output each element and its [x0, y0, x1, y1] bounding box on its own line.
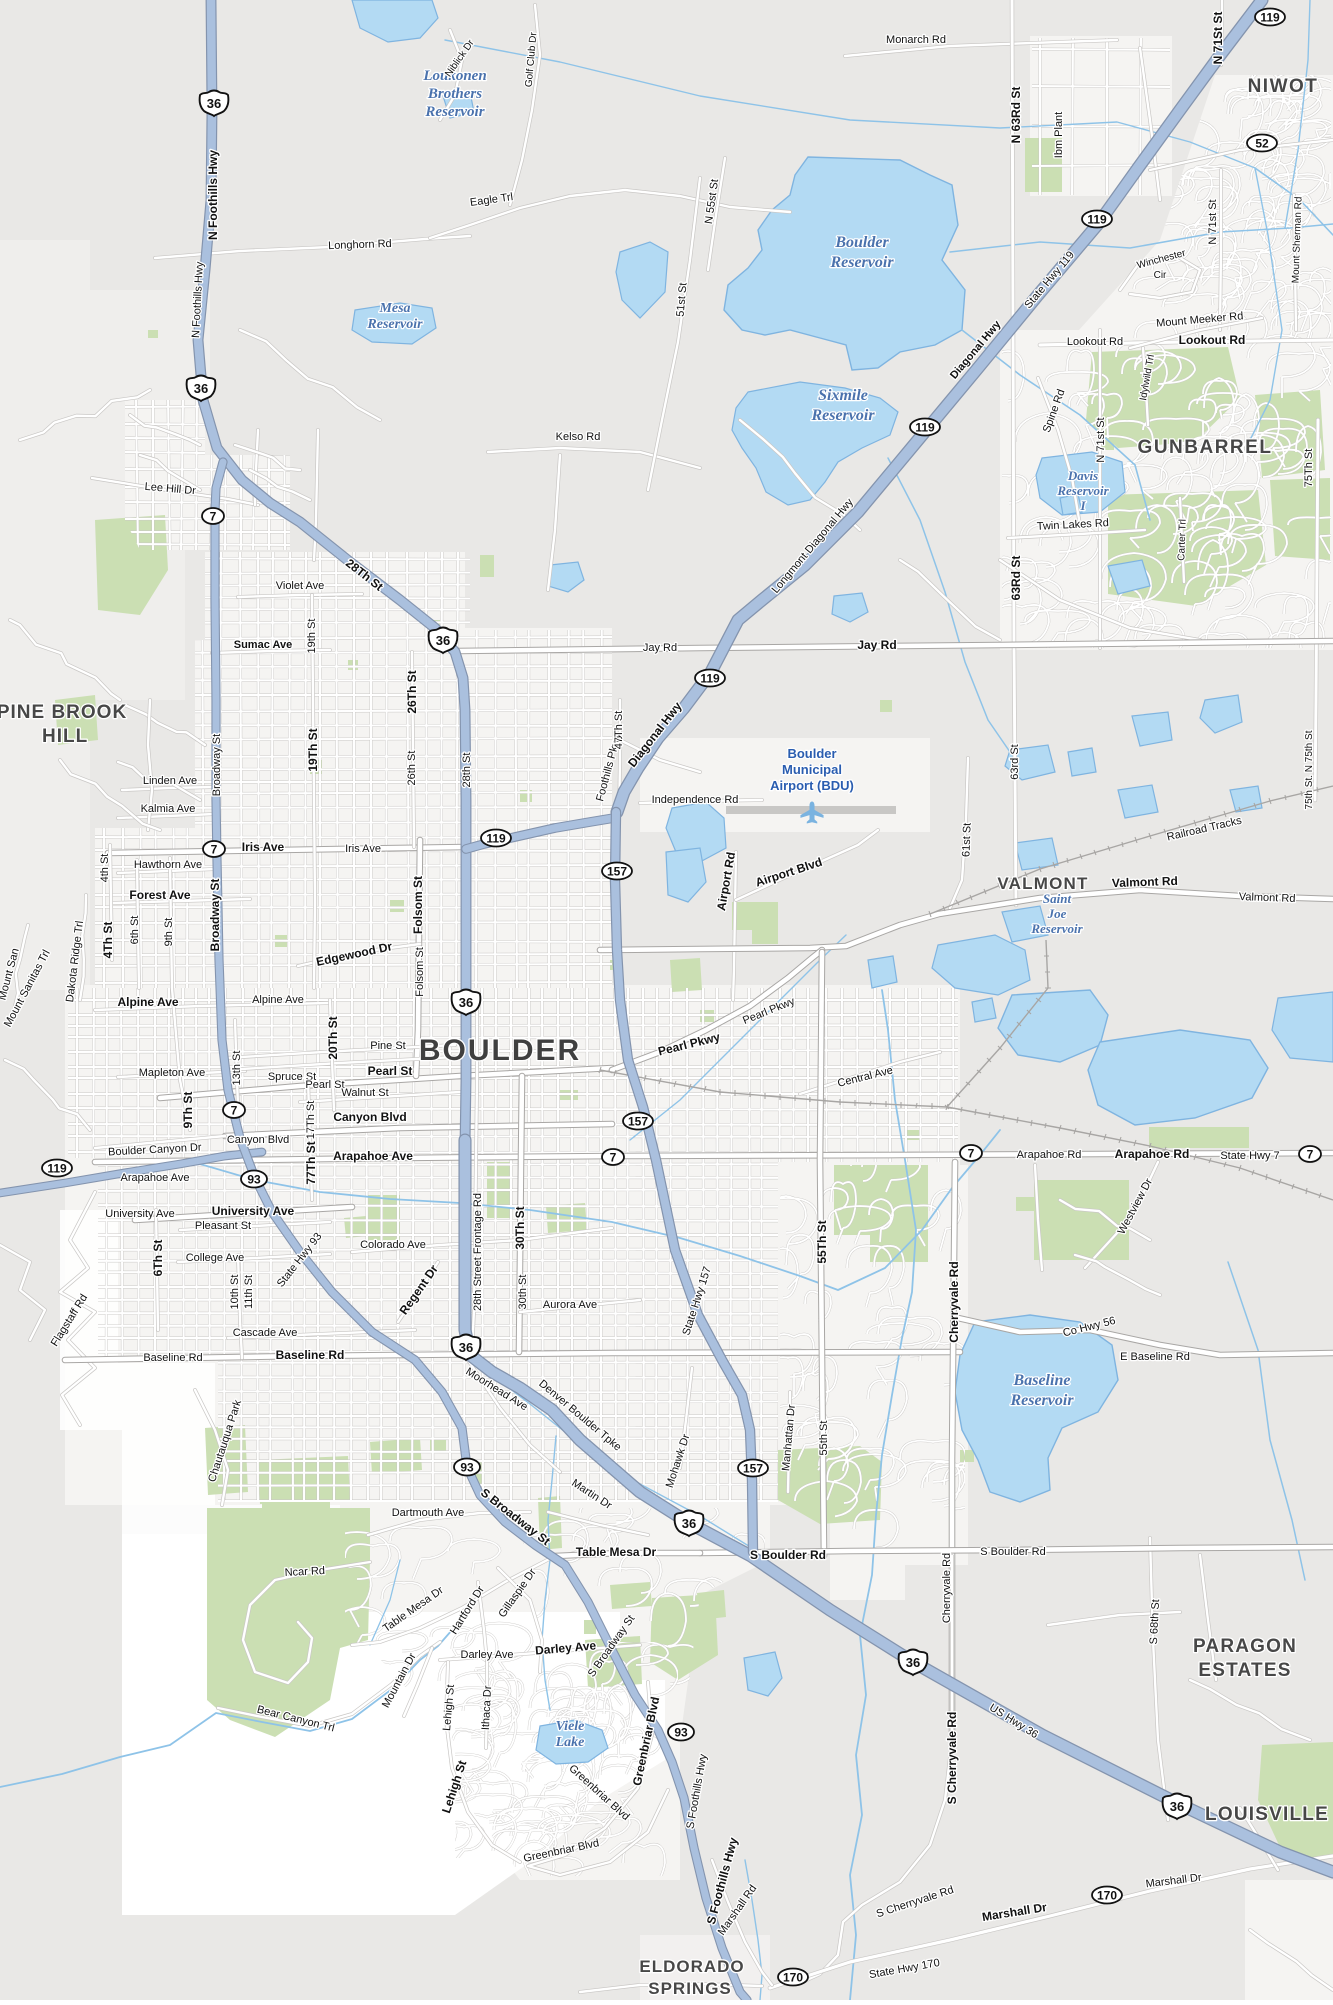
svg-text:61st St: 61st St — [960, 823, 973, 858]
svg-text:Reservoir: Reservoir — [810, 407, 875, 424]
svg-text:Broadway St: Broadway St — [208, 879, 222, 952]
svg-text:Arapahoe Ave: Arapahoe Ave — [121, 1172, 190, 1184]
svg-text:Mapleton Ave: Mapleton Ave — [139, 1067, 205, 1079]
svg-text:Folsom St: Folsom St — [414, 947, 426, 997]
svg-text:SPRINGS: SPRINGS — [648, 1979, 732, 1998]
svg-text:170: 170 — [1097, 1888, 1117, 1902]
svg-text:Longhorn Rd: Longhorn Rd — [328, 238, 392, 252]
svg-text:College Ave: College Ave — [186, 1252, 245, 1264]
svg-text:Pine St: Pine St — [370, 1040, 405, 1052]
svg-text:Colorado Ave: Colorado Ave — [360, 1239, 426, 1251]
svg-text:28th St: 28th St — [461, 753, 473, 788]
svg-text:20Th St: 20Th St — [326, 1016, 340, 1059]
svg-text:119: 119 — [1260, 10, 1280, 24]
svg-text:Arapahoe Rd: Arapahoe Rd — [1017, 1149, 1082, 1161]
svg-text:N 63Rd St: N 63Rd St — [1009, 87, 1023, 144]
svg-text:S Boulder Rd: S Boulder Rd — [750, 1548, 826, 1562]
svg-text:Viele: Viele — [556, 1719, 585, 1734]
svg-text:Airport (BDU): Airport (BDU) — [770, 778, 854, 793]
svg-text:55th St: 55th St — [818, 1421, 830, 1456]
svg-text:Brothers: Brothers — [427, 86, 482, 102]
svg-text:State Hwy 7: State Hwy 7 — [1220, 1150, 1279, 1162]
svg-text:7: 7 — [231, 1103, 238, 1117]
svg-text:4Th St: 4Th St — [101, 922, 115, 959]
svg-text:Iris Ave: Iris Ave — [345, 843, 381, 855]
svg-text:Linden Ave: Linden Ave — [143, 775, 197, 787]
svg-text:119: 119 — [1087, 212, 1107, 226]
svg-text:119: 119 — [700, 671, 720, 685]
svg-text:Alpine Ave: Alpine Ave — [252, 994, 304, 1006]
svg-text:VALMONT: VALMONT — [997, 874, 1088, 893]
svg-text:N 71st St: N 71st St — [1095, 417, 1107, 462]
svg-text:Sumac Ave: Sumac Ave — [234, 639, 293, 651]
svg-text:119: 119 — [915, 420, 935, 434]
svg-text:Darley Ave: Darley Ave — [461, 1649, 514, 1661]
svg-text:N 71St St: N 71St St — [1211, 12, 1225, 65]
svg-text:26th St: 26th St — [406, 751, 418, 786]
svg-text:47Th St: 47Th St — [613, 711, 625, 750]
svg-text:28th Street Frontage Rd: 28th Street Frontage Rd — [472, 1193, 484, 1311]
svg-text:Independence Rd: Independence Rd — [652, 794, 739, 806]
svg-text:Reservoir: Reservoir — [1056, 483, 1109, 498]
svg-text:13th St: 13th St — [231, 1051, 243, 1086]
svg-text:Valmont Rd: Valmont Rd — [1112, 874, 1178, 890]
svg-text:Kalmia Ave: Kalmia Ave — [141, 803, 196, 815]
svg-text:30th St: 30th St — [517, 1275, 529, 1310]
svg-text:Reservoir: Reservoir — [1030, 921, 1083, 936]
svg-text:Jay Rd: Jay Rd — [857, 638, 896, 652]
svg-text:Reservoir: Reservoir — [1009, 1392, 1074, 1409]
svg-text:93: 93 — [674, 1725, 688, 1739]
svg-text:Canyon Blvd: Canyon Blvd — [333, 1110, 406, 1124]
svg-text:157: 157 — [607, 864, 627, 878]
svg-text:11th St: 11th St — [243, 1275, 255, 1309]
svg-text:6Th St: 6Th St — [151, 1240, 165, 1277]
svg-text:Reservoir: Reservoir — [366, 317, 423, 332]
svg-text:Valmont Rd: Valmont Rd — [1239, 891, 1296, 905]
svg-text:Davis: Davis — [1067, 468, 1098, 483]
svg-text:Municipal: Municipal — [782, 762, 842, 777]
svg-text:E Baseline Rd: E Baseline Rd — [1120, 1351, 1190, 1363]
svg-text:Walnut St: Walnut St — [341, 1087, 388, 1099]
svg-text:9th St: 9th St — [163, 918, 175, 947]
svg-text:BOULDER: BOULDER — [419, 1034, 581, 1067]
svg-text:I: I — [1079, 498, 1086, 513]
svg-text:N Foothills Hwy: N Foothills Hwy — [206, 150, 220, 240]
svg-text:157: 157 — [628, 1114, 648, 1128]
svg-text:36: 36 — [207, 96, 221, 111]
svg-text:Dartmouth Ave: Dartmouth Ave — [392, 1507, 465, 1519]
svg-text:Kelso Rd: Kelso Rd — [556, 431, 601, 443]
svg-text:52: 52 — [1255, 136, 1269, 150]
svg-text:ELDORADO: ELDORADO — [639, 1957, 744, 1976]
svg-text:36: 36 — [194, 381, 208, 396]
svg-text:36: 36 — [436, 633, 450, 648]
svg-text:93: 93 — [247, 1172, 261, 1186]
svg-text:Baseline Rd: Baseline Rd — [276, 1348, 345, 1362]
svg-text:Aurora Ave: Aurora Ave — [543, 1299, 597, 1311]
svg-text:Sixmile: Sixmile — [818, 387, 868, 404]
svg-text:Baseline Rd: Baseline Rd — [143, 1352, 202, 1364]
svg-text:63Rd St: 63Rd St — [1009, 556, 1023, 601]
svg-text:Broadway St: Broadway St — [211, 734, 223, 796]
svg-text:Cherryvale Rd: Cherryvale Rd — [941, 1553, 953, 1623]
svg-text:36: 36 — [682, 1516, 696, 1531]
svg-text:Lookout Rd: Lookout Rd — [1067, 336, 1123, 348]
svg-text:NIWOT: NIWOT — [1248, 76, 1319, 97]
svg-text:6th St: 6th St — [129, 916, 141, 945]
svg-text:119: 119 — [47, 1161, 67, 1175]
svg-text:19th St: 19th St — [306, 619, 318, 654]
svg-text:GUNBARREL: GUNBARREL — [1138, 437, 1273, 458]
svg-text:Saint: Saint — [1043, 891, 1072, 906]
svg-text:Baseline: Baseline — [1013, 1372, 1071, 1389]
svg-text:119: 119 — [486, 831, 506, 845]
svg-text:170: 170 — [783, 1970, 803, 1984]
svg-text:Table Mesa Dr: Table Mesa Dr — [576, 1545, 657, 1559]
svg-text:Mesa: Mesa — [378, 301, 410, 316]
svg-text:Arapahoe Ave: Arapahoe Ave — [333, 1149, 413, 1163]
svg-text:Folsom St: Folsom St — [411, 876, 425, 934]
svg-text:Hawthorn Ave: Hawthorn Ave — [134, 859, 202, 871]
svg-text:Cir: Cir — [1154, 270, 1167, 281]
svg-text:7: 7 — [210, 509, 217, 523]
svg-text:30Th St: 30Th St — [513, 1206, 527, 1249]
svg-text:N 71st St: N 71st St — [1207, 199, 1219, 244]
svg-text:Carter Trl: Carter Trl — [1176, 519, 1188, 561]
svg-text:7: 7 — [1307, 1147, 1314, 1161]
svg-text:Monarch Rd: Monarch Rd — [886, 34, 946, 46]
svg-text:Forest Ave: Forest Ave — [129, 888, 190, 902]
svg-text:36: 36 — [1170, 1799, 1184, 1814]
svg-text:Boulder: Boulder — [834, 234, 889, 251]
svg-text:55Th St: 55Th St — [815, 1220, 829, 1263]
svg-text:ESTATES: ESTATES — [1198, 1660, 1291, 1681]
svg-text:LOUISVILLE: LOUISVILLE — [1205, 1804, 1329, 1825]
svg-text:S Boulder Rd: S Boulder Rd — [980, 1546, 1045, 1558]
svg-text:Ncar Rd: Ncar Rd — [284, 1565, 325, 1579]
svg-text:S Cherryvale Rd: S Cherryvale Rd — [945, 1712, 959, 1805]
svg-text:Pleasant St: Pleasant St — [195, 1220, 251, 1232]
svg-text:36: 36 — [459, 1340, 473, 1355]
svg-text:Canyon Blvd: Canyon Blvd — [227, 1134, 289, 1146]
svg-text:10th St: 10th St — [229, 1275, 241, 1310]
svg-text:Ibm Plant: Ibm Plant — [1053, 112, 1065, 158]
svg-text:Lookout Rd: Lookout Rd — [1179, 333, 1246, 347]
svg-text:157: 157 — [743, 1461, 763, 1475]
svg-text:Cascade Ave: Cascade Ave — [233, 1327, 298, 1339]
svg-text:Boulder: Boulder — [787, 746, 836, 761]
svg-text:17Th St: 17Th St — [305, 1101, 317, 1140]
svg-text:Lake: Lake — [555, 1735, 585, 1750]
svg-text:7: 7 — [968, 1146, 975, 1160]
svg-text:36: 36 — [906, 1655, 920, 1670]
svg-text:Arapahoe Rd: Arapahoe Rd — [1115, 1147, 1190, 1161]
svg-text:Jay Rd: Jay Rd — [643, 642, 677, 654]
svg-text:Joe: Joe — [1047, 906, 1067, 921]
svg-text:36: 36 — [459, 995, 473, 1010]
svg-text:93: 93 — [460, 1460, 474, 1474]
svg-text:University Ave: University Ave — [105, 1208, 175, 1220]
svg-text:S 68th St: S 68th St — [1148, 1599, 1162, 1645]
svg-text:9Th St: 9Th St — [181, 1092, 195, 1129]
svg-text:HILL: HILL — [42, 726, 88, 747]
svg-text:75Th St: 75Th St — [1303, 449, 1315, 488]
svg-text:Pearl St: Pearl St — [368, 1064, 413, 1078]
svg-text:26Th St: 26Th St — [405, 670, 419, 713]
svg-text:PINE BROOK: PINE BROOK — [0, 702, 127, 723]
svg-text:Alpine Ave: Alpine Ave — [117, 995, 178, 1009]
svg-text:7: 7 — [211, 842, 218, 856]
svg-text:PARAGON: PARAGON — [1193, 1636, 1297, 1657]
svg-text:7: 7 — [610, 1150, 617, 1164]
svg-text:Violet Ave: Violet Ave — [276, 580, 325, 592]
svg-text:Iris Ave: Iris Ave — [242, 840, 285, 854]
svg-text:University Ave: University Ave — [212, 1204, 295, 1218]
svg-text:Reservoir: Reservoir — [829, 254, 894, 271]
svg-text:4th St: 4th St — [99, 854, 111, 883]
svg-text:75th St. N 75th St: 75th St. N 75th St — [1304, 730, 1315, 809]
svg-text:Reservoir: Reservoir — [424, 104, 484, 120]
svg-text:Ithaca Dr: Ithaca Dr — [480, 1685, 494, 1731]
svg-text:77Th St: 77Th St — [304, 1141, 318, 1184]
svg-text:19Th St: 19Th St — [306, 728, 320, 771]
svg-text:63rd St: 63rd St — [1009, 744, 1021, 779]
svg-text:Cherryvale Rd: Cherryvale Rd — [947, 1261, 961, 1342]
svg-text:Pearl St: Pearl St — [305, 1079, 344, 1091]
